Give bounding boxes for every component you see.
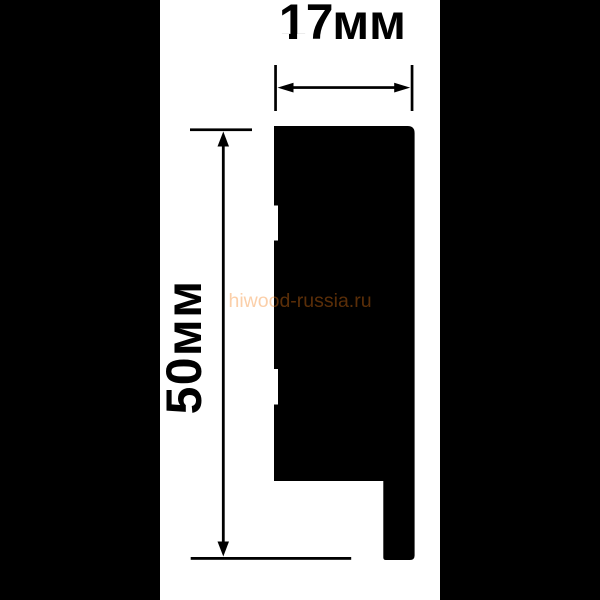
svg-text:17мм: 17мм: [279, 0, 406, 50]
